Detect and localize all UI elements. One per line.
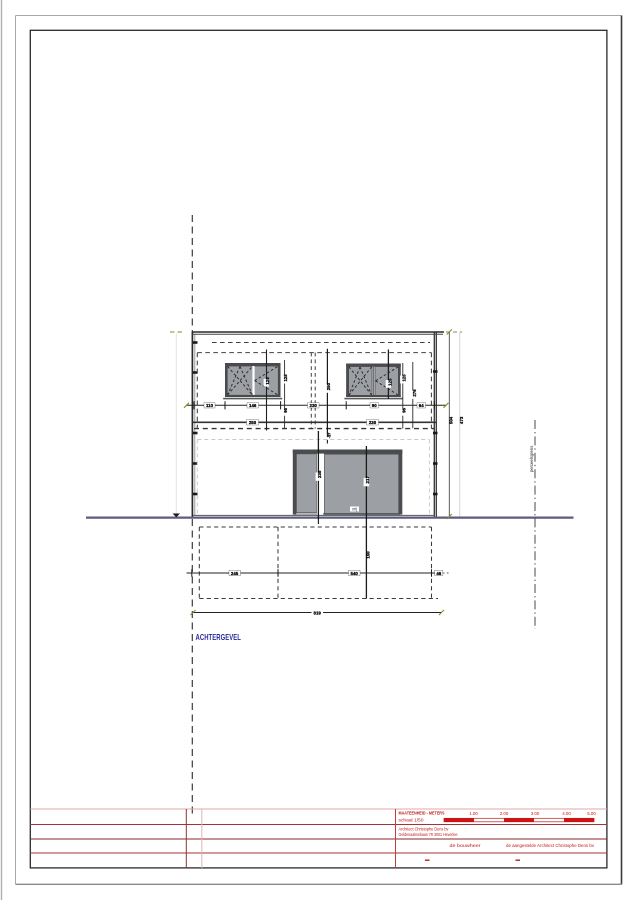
svg-text:235: 235 <box>317 470 322 478</box>
svg-text:250: 250 <box>249 420 257 425</box>
svg-text:MAATEENHEID - METERS: MAATEENHEID - METERS <box>399 810 445 815</box>
svg-text:vrij: vrij <box>352 507 357 512</box>
svg-text:96: 96 <box>401 407 406 412</box>
svg-text:125: 125 <box>283 374 288 382</box>
svg-text:Architect Christophe Dens bv: Architect Christophe Dens bv <box>399 826 450 831</box>
svg-text:125: 125 <box>401 374 406 382</box>
svg-text:ACHTERGEVEL: ACHTERGEVEL <box>196 633 242 642</box>
svg-text:110: 110 <box>206 403 214 408</box>
svg-text:125: 125 <box>387 378 392 386</box>
svg-text:90: 90 <box>372 403 377 408</box>
svg-text:540: 540 <box>351 571 359 576</box>
svg-text:96: 96 <box>283 407 288 412</box>
svg-text:230: 230 <box>310 403 318 408</box>
svg-text:146: 146 <box>249 403 257 408</box>
svg-text:5.00: 5.00 <box>587 811 596 816</box>
svg-text:de aangestelde Architect Chris: de aangestelde Architect Christophe Dens… <box>506 843 595 848</box>
svg-text:250: 250 <box>326 382 331 390</box>
svg-text:217: 217 <box>365 476 370 484</box>
svg-text:3.00: 3.00 <box>531 811 540 816</box>
svg-text:276: 276 <box>412 389 417 397</box>
svg-text:64: 64 <box>419 403 424 408</box>
svg-text:4.00: 4.00 <box>562 811 571 816</box>
svg-text:Geldenaaksebaan 79 3001 Heverl: Geldenaaksebaan 79 3001 Heverlee <box>399 832 458 837</box>
svg-text:819: 819 <box>314 610 322 615</box>
svg-text:schaal 1/50: schaal 1/50 <box>399 818 425 823</box>
svg-text:504: 504 <box>449 416 454 424</box>
svg-text:473: 473 <box>459 416 464 424</box>
svg-text:245: 245 <box>231 571 239 576</box>
svg-text:de bouwheer: de bouwheer <box>450 843 482 848</box>
svg-text:-37: -37 <box>326 432 331 439</box>
svg-text:1.00: 1.00 <box>469 811 478 816</box>
svg-text:150: 150 <box>365 551 370 559</box>
svg-text:2.00: 2.00 <box>500 811 509 816</box>
svg-text:230: 230 <box>369 420 377 425</box>
svg-text:125: 125 <box>265 377 270 385</box>
svg-text:46: 46 <box>436 571 441 576</box>
svg-text:perceelsgrens: perceelsgrens <box>529 446 534 472</box>
